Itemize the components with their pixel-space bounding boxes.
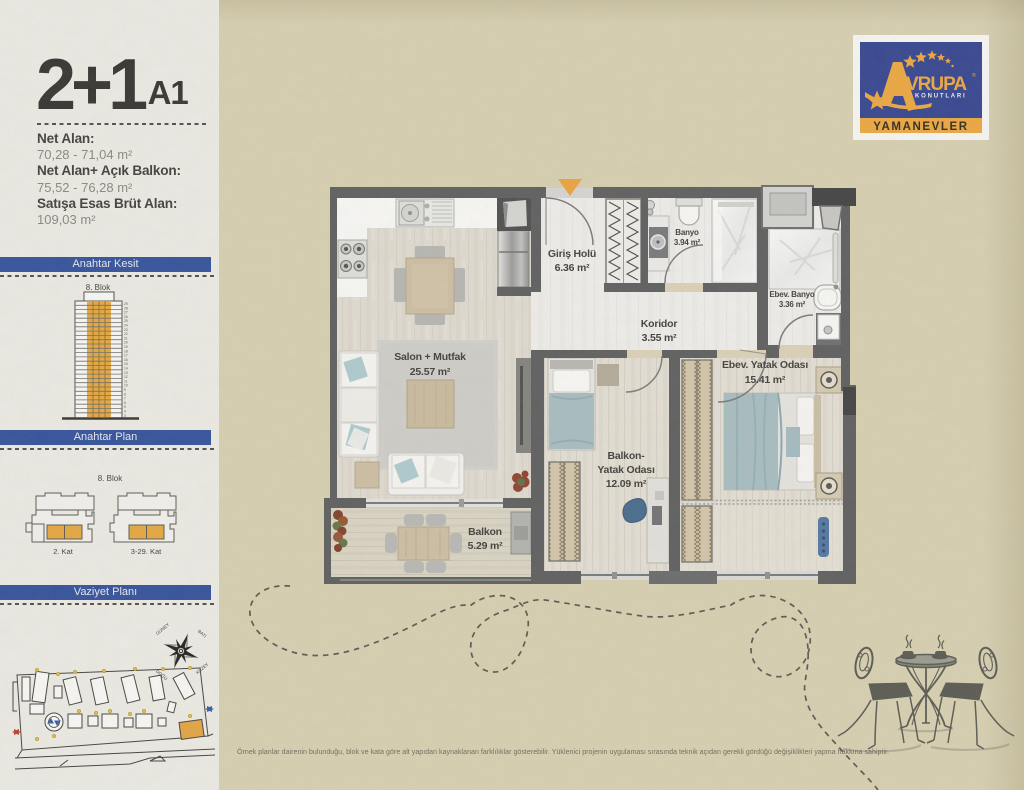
svg-text:15.41 m²: 15.41 m² xyxy=(745,374,786,386)
svg-text:Banyo: Banyo xyxy=(675,228,699,237)
svg-text:YAMANEVLER: YAMANEVLER xyxy=(873,121,968,133)
svg-text:2. Kat: 2. Kat xyxy=(53,547,74,556)
svg-text:6.36 m²: 6.36 m² xyxy=(555,262,590,274)
svg-text:BATI: BATI xyxy=(197,629,208,639)
svg-text:3.55 m²: 3.55 m² xyxy=(642,332,677,344)
svg-text:25.57 m²: 25.57 m² xyxy=(410,366,451,378)
svg-text:VRUPA: VRUPA xyxy=(906,74,967,95)
svg-text:Salon + Mutfak: Salon + Mutfak xyxy=(394,351,466,363)
svg-text:8. Blok: 8. Blok xyxy=(86,283,111,292)
svg-text:12.09 m²: 12.09 m² xyxy=(606,478,647,490)
svg-text:3: 3 xyxy=(124,414,126,418)
svg-text:Yatak Odası: Yatak Odası xyxy=(597,464,655,476)
svg-text:®: ® xyxy=(972,72,976,79)
svg-text:3.36 m²: 3.36 m² xyxy=(779,300,806,309)
svg-text:Koridor: Koridor xyxy=(641,318,678,330)
svg-text:Ebev. Banyo: Ebev. Banyo xyxy=(769,290,815,299)
svg-text:Balkon-: Balkon- xyxy=(607,450,645,462)
svg-text:5.29 m²: 5.29 m² xyxy=(468,540,503,552)
svg-text:3-29. Kat: 3-29. Kat xyxy=(131,547,162,556)
svg-text:Balkon: Balkon xyxy=(468,526,502,538)
svg-text:Ebev. Yatak Odası: Ebev. Yatak Odası xyxy=(722,359,808,371)
svg-text:KONUTLARI: KONUTLARI xyxy=(915,94,967,100)
svg-text:Giriş Holü: Giriş Holü xyxy=(548,248,596,260)
svg-text:GÜNEY: GÜNEY xyxy=(154,621,170,636)
svg-text:8. Blok: 8. Blok xyxy=(98,474,123,483)
svg-text:3.94 m²: 3.94 m² xyxy=(674,238,701,247)
